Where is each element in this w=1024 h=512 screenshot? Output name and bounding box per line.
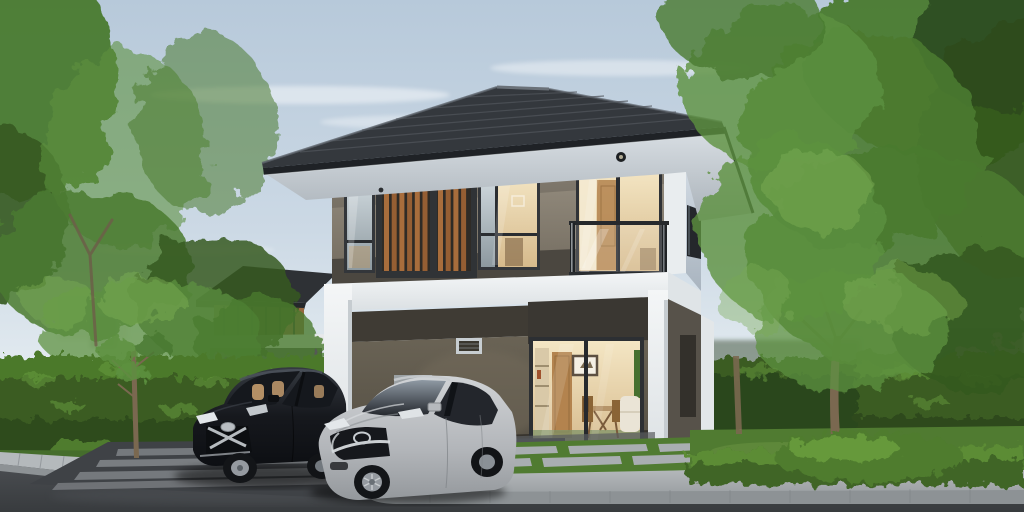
- vent-window: [456, 338, 482, 354]
- black-car-mirror: [268, 395, 279, 402]
- downlight-glow: [619, 155, 623, 159]
- house-exterior-render: [0, 0, 1024, 512]
- car-seat: [252, 384, 264, 400]
- fog-lamp: [330, 462, 348, 470]
- roof-ridge: [497, 87, 549, 89]
- scene-canvas: [0, 0, 1024, 512]
- wall-fixture: [379, 188, 384, 193]
- side-window-lower: [680, 335, 696, 417]
- silver-car-mirror: [428, 403, 441, 411]
- toyota-emblem: [221, 423, 235, 432]
- door-header: [528, 297, 650, 344]
- balcony-glass-railing: [569, 221, 669, 279]
